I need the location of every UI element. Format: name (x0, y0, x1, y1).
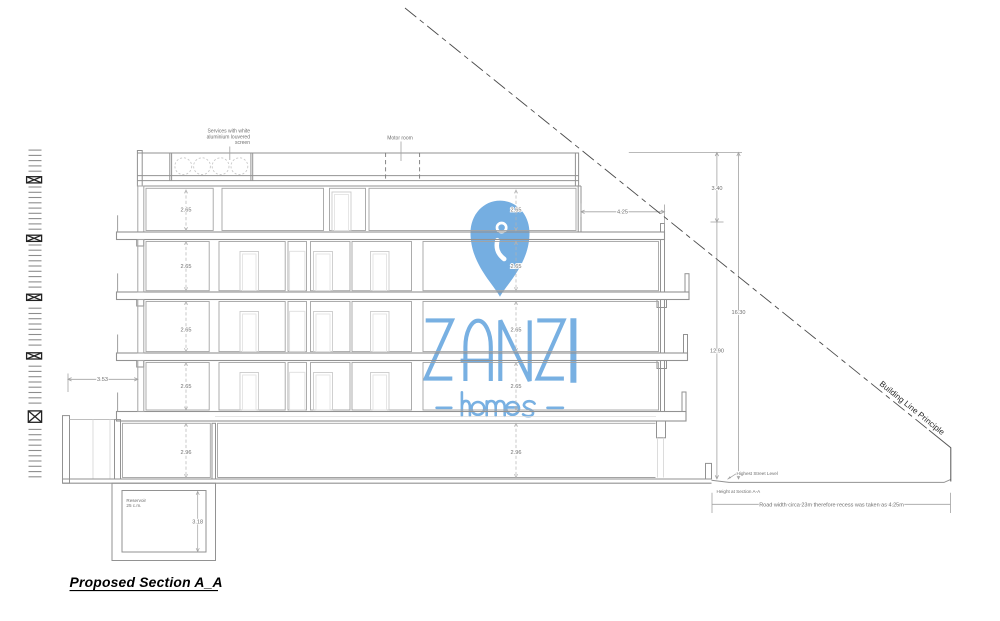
svg-text:Height at Section A-A: Height at Section A-A (717, 489, 762, 494)
svg-text:Reservoir: Reservoir (126, 498, 146, 503)
svg-text:2.96: 2.96 (511, 450, 522, 456)
svg-text:2.65: 2.65 (511, 264, 522, 270)
svg-text:2.65: 2.65 (181, 264, 192, 270)
svg-text:3.40: 3.40 (712, 186, 723, 192)
svg-text:3.18: 3.18 (192, 520, 203, 526)
svg-text:screen: screen (235, 140, 250, 146)
svg-text:2.65: 2.65 (511, 384, 522, 390)
svg-text:2.65: 2.65 (181, 328, 192, 334)
svg-text:2.96: 2.96 (181, 450, 192, 456)
svg-text:12.90: 12.90 (710, 349, 724, 355)
svg-text:4.25: 4.25 (617, 210, 628, 216)
svg-text:2.65: 2.65 (511, 208, 522, 214)
svg-text:Building Line Principle: Building Line Principle (878, 379, 947, 437)
svg-text:3.53: 3.53 (97, 377, 108, 383)
svg-text:2.65: 2.65 (181, 208, 192, 214)
svg-text:16.30: 16.30 (732, 310, 746, 316)
svg-text:Highest Street Level: Highest Street Level (737, 471, 778, 476)
svg-text:2.65: 2.65 (511, 328, 522, 334)
svg-text:25 c.m.: 25 c.m. (126, 503, 141, 508)
svg-text:Proposed Section A_A: Proposed Section A_A (70, 574, 223, 590)
svg-text:2.65: 2.65 (181, 384, 192, 390)
svg-text:Motor room: Motor room (387, 136, 413, 142)
svg-text:Road width circa 23m therefore: Road width circa 23m therefore recess wa… (759, 502, 904, 508)
